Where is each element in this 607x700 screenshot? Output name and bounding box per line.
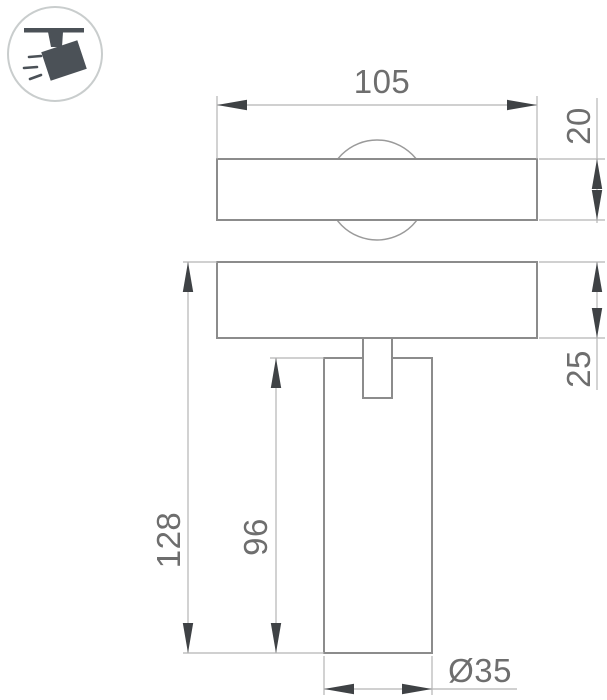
arrowhead-right [402, 684, 432, 694]
dimension-track-depth: 25 [539, 262, 605, 390]
arrowhead-up [183, 262, 193, 292]
dimension-label-overall-height: 128 [150, 512, 187, 569]
dimension-track-height: 20 [539, 98, 605, 223]
technical-drawing-canvas: 105 20 25 [0, 0, 607, 700]
product-type-icon [8, 7, 102, 101]
top-view-track-bar [217, 159, 537, 220]
dimension-label-track-height: 20 [560, 107, 597, 145]
arrowhead-up [592, 262, 602, 292]
front-view-stem [363, 330, 392, 398]
arrowhead-left [324, 684, 354, 694]
dimension-body-height: 96 [237, 358, 324, 653]
dimension-label-track-depth: 25 [560, 350, 597, 388]
dimension-body-diameter: Ø35 [324, 652, 517, 695]
arrowhead-up [271, 358, 281, 388]
arrowhead-down [183, 623, 193, 653]
arrowhead-right [507, 100, 537, 110]
icon-light-ray [24, 67, 37, 68]
front-view-lamp-cylinder [324, 358, 432, 653]
front-view-track-bar [217, 262, 537, 338]
arrowhead-up [592, 159, 602, 189]
arrowhead-left [217, 100, 247, 110]
icon-track-rail [24, 28, 84, 33]
front-view: 25 128 96 Ø35 [150, 262, 605, 695]
arrowhead-down [592, 308, 602, 338]
top-view: 105 20 [217, 63, 605, 240]
arrowhead-down [271, 623, 281, 653]
dimension-label-body-height: 96 [237, 518, 274, 556]
dimension-label-track-width: 105 [354, 63, 411, 100]
arrowhead-down [592, 190, 602, 220]
dimension-label-body-diameter: Ø35 [448, 652, 512, 689]
icon-light-ray [29, 56, 41, 57]
